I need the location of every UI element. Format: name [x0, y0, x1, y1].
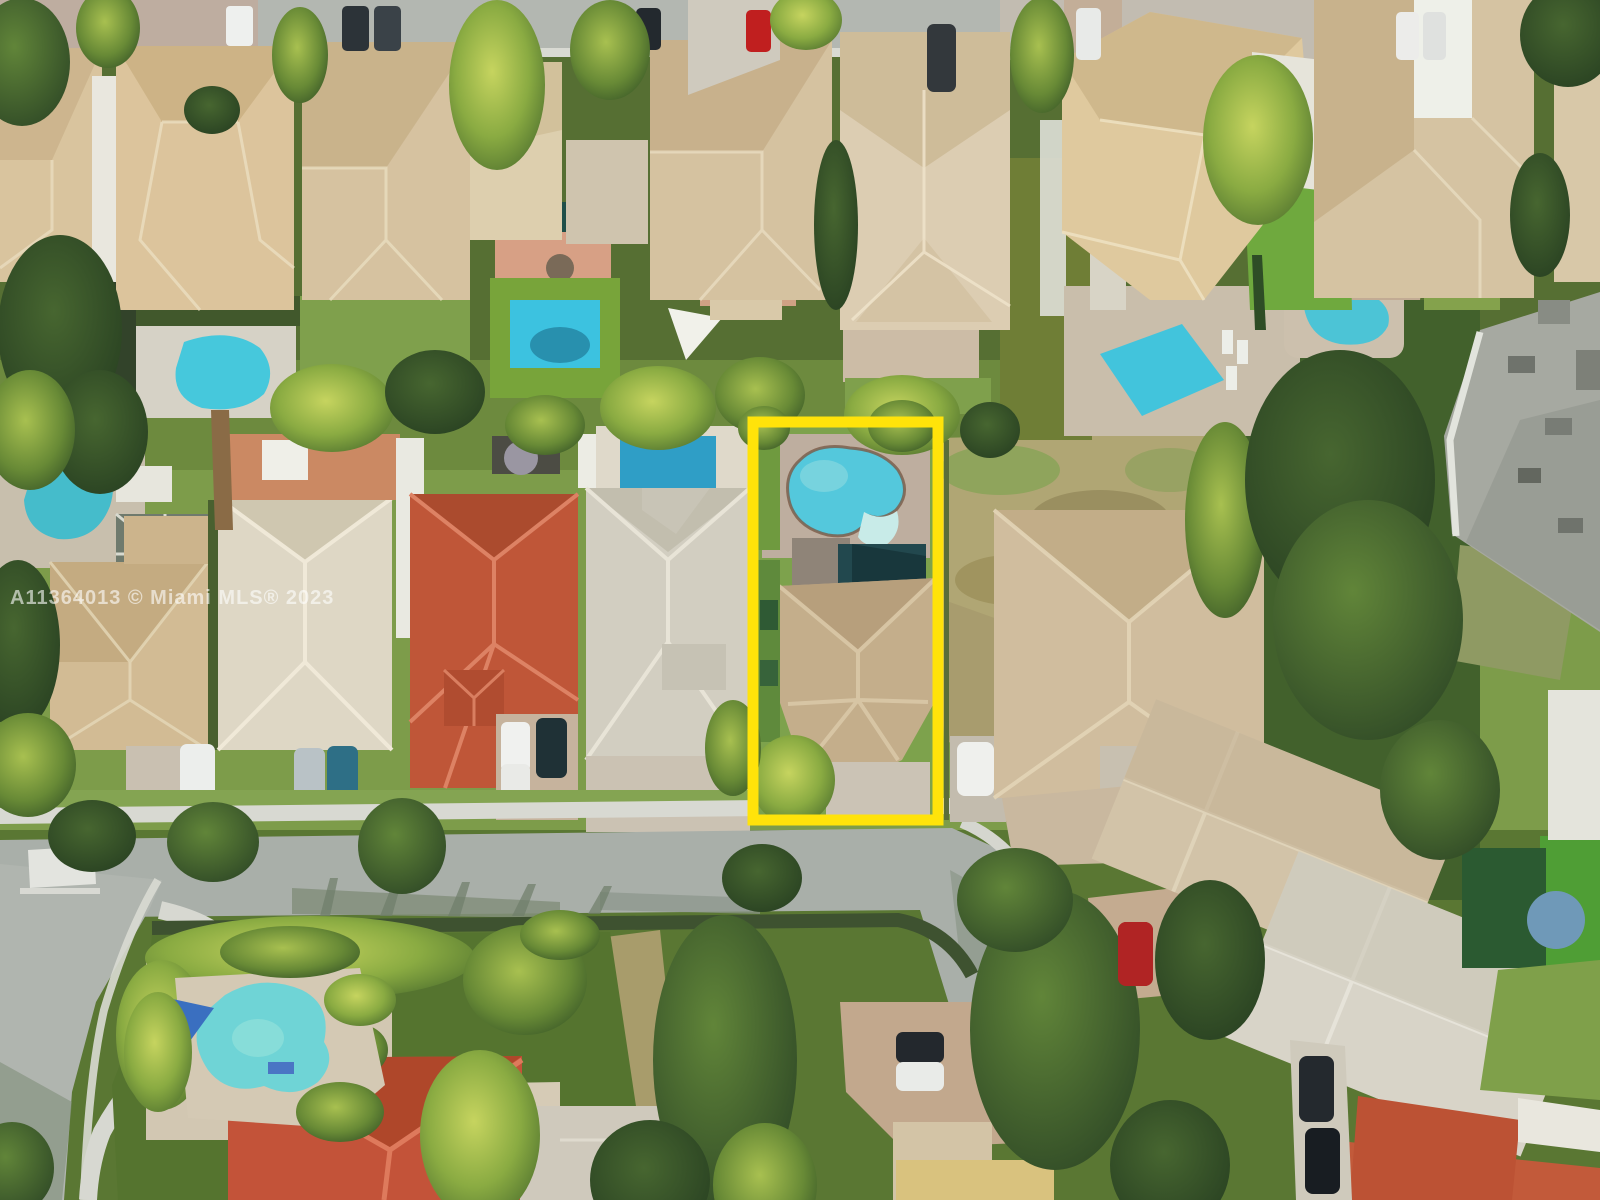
svg-text:A11364013 © Miami MLS® 2023: A11364013 © Miami MLS® 2023	[10, 587, 334, 609]
